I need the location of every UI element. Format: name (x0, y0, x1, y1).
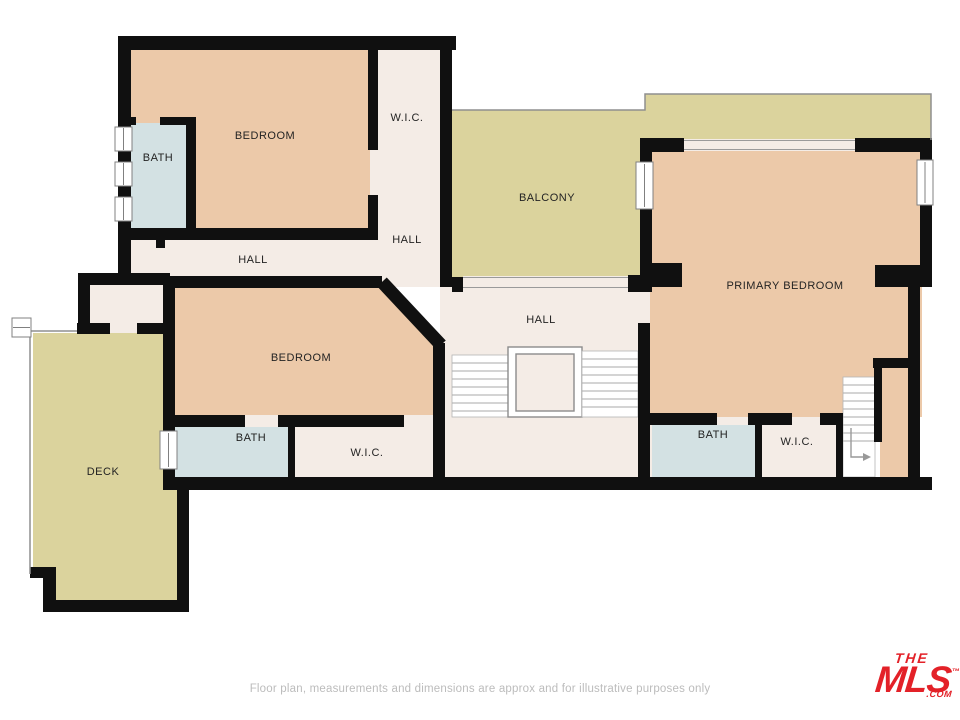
wall (640, 138, 652, 164)
room-label-deck: DECK (87, 466, 120, 478)
wall (908, 287, 920, 362)
wall (440, 36, 452, 287)
room-label-hall-upper: HALL (392, 234, 422, 246)
wall (118, 151, 131, 162)
wall (640, 208, 652, 292)
wall (118, 237, 131, 278)
room-label-hall-left: HALL (238, 254, 268, 266)
wall (163, 477, 932, 490)
room-label-bedroom-1: BEDROOM (235, 130, 295, 142)
room-label-bedroom-2: BEDROOM (271, 352, 331, 364)
wall (452, 277, 463, 292)
wall (836, 413, 843, 477)
wall (160, 117, 188, 125)
wall (163, 285, 175, 431)
room-bath-1 (130, 123, 188, 230)
wall (118, 36, 131, 127)
wall (652, 263, 682, 287)
room-label-bath-1: BATH (143, 152, 174, 164)
wall (118, 186, 131, 197)
wall (650, 413, 717, 425)
wall (77, 323, 110, 334)
wall (755, 425, 762, 477)
disclaimer-text: Floor plan, measurements and dimensions … (0, 683, 960, 695)
wall (177, 490, 189, 602)
stair-void (516, 354, 574, 411)
wall (118, 36, 456, 50)
room-label-bath-2: BATH (236, 432, 267, 444)
themls-logo: THE MLS™ .COM (873, 651, 960, 699)
wall (638, 323, 650, 477)
room-label-primary-bedroom: PRIMARY BEDROOM (726, 280, 843, 292)
floor-plan-page: BEDROOM BATH W.I.C. HALL HALL BALCONY BE… (0, 0, 960, 720)
wall (908, 362, 920, 490)
wall (278, 415, 404, 427)
wall (874, 366, 882, 442)
wall (170, 276, 382, 288)
wall (30, 567, 56, 578)
staircase-right (843, 377, 875, 477)
wall (118, 228, 378, 240)
wall (920, 204, 932, 265)
wall (920, 138, 932, 162)
wall (78, 285, 90, 325)
door-jamb (156, 240, 165, 248)
wic1-hall-floor (368, 48, 440, 287)
floor-plan-drawing: BEDROOM BATH W.I.C. HALL HALL BALCONY BE… (0, 0, 960, 720)
primary-bedroom-nook (880, 360, 910, 477)
wall (43, 578, 56, 603)
wall (748, 413, 792, 425)
stair-flight (843, 377, 875, 477)
wall (288, 427, 295, 477)
staircase-center (452, 347, 638, 417)
wall (186, 117, 196, 230)
room-label-bath-3: BATH (698, 429, 729, 441)
stair-flight-left (452, 355, 508, 417)
room-label-wic-2: W.I.C. (351, 447, 384, 459)
room-label-wic-3: W.I.C. (781, 436, 814, 448)
wall (78, 273, 170, 285)
wall (433, 343, 445, 477)
room-label-wic-1: W.I.C. (391, 112, 424, 124)
trademark-symbol: ™ (951, 667, 960, 676)
wall (170, 415, 245, 427)
room-label-hall-center: HALL (526, 314, 556, 326)
room-label-balcony: BALCONY (519, 192, 575, 204)
wall (43, 600, 189, 612)
wall (875, 265, 932, 287)
wall (368, 36, 378, 150)
room-bath-2 (172, 427, 288, 477)
wall (130, 117, 136, 125)
